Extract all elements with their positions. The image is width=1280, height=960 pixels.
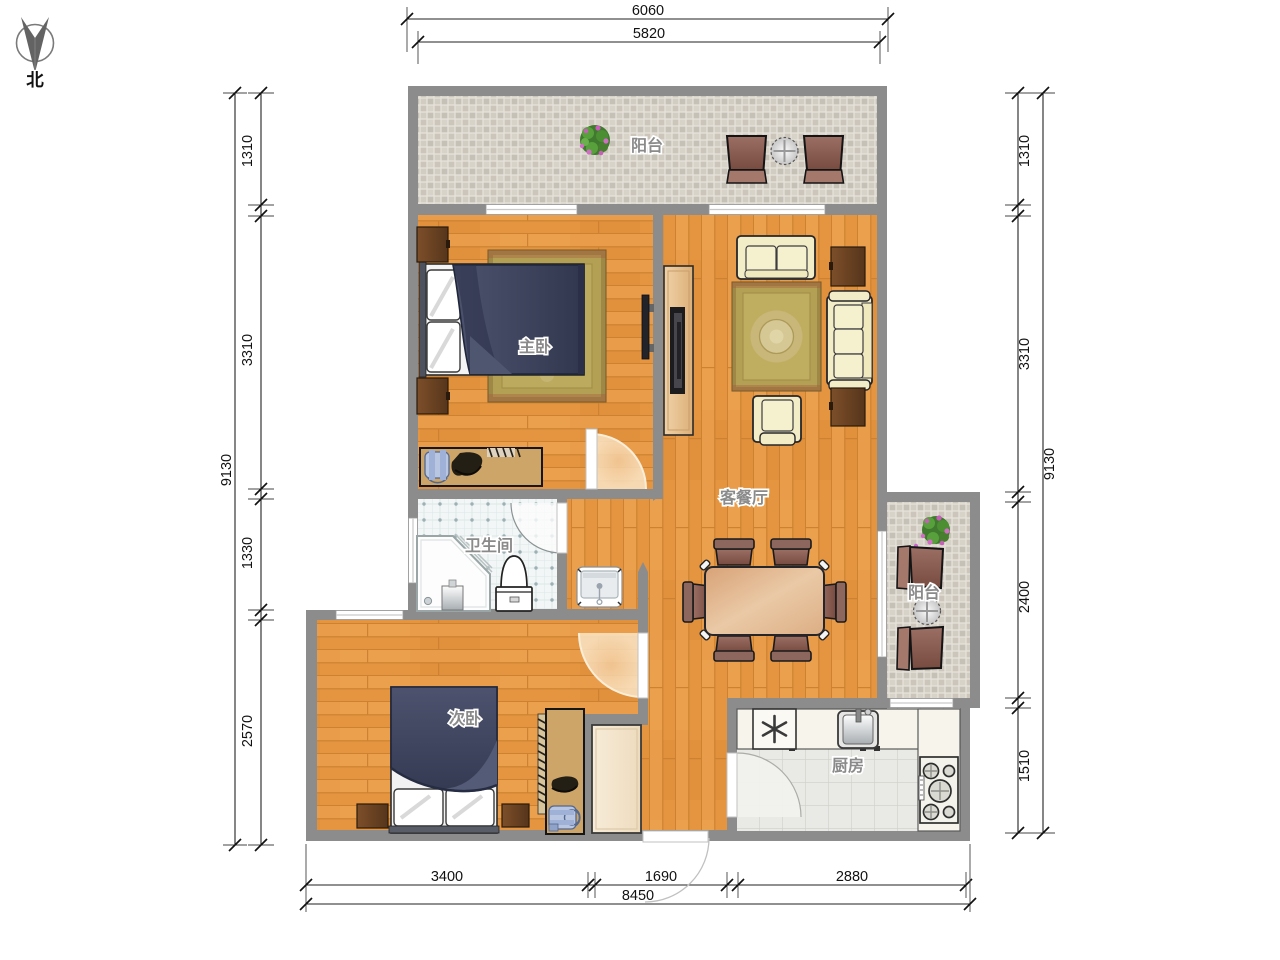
svg-text:厨房: 厨房 (832, 756, 864, 775)
svg-text:3310: 3310 (1017, 338, 1033, 370)
svg-text:阳台: 阳台 (908, 583, 940, 602)
svg-text:6060: 6060 (632, 3, 664, 19)
svg-text:1330: 1330 (240, 537, 256, 569)
svg-text:北: 北 (26, 70, 44, 90)
svg-text:5820: 5820 (633, 26, 665, 42)
svg-text:1690: 1690 (645, 869, 677, 885)
svg-text:客餐厅: 客餐厅 (720, 488, 768, 507)
svg-text:主卧: 主卧 (519, 337, 551, 356)
svg-text:2880: 2880 (836, 869, 868, 885)
svg-text:2570: 2570 (240, 715, 256, 747)
svg-text:9130: 9130 (219, 454, 235, 486)
svg-text:1310: 1310 (240, 135, 256, 167)
svg-text:卫生间: 卫生间 (465, 536, 513, 555)
svg-text:1510: 1510 (1017, 750, 1033, 782)
svg-text:9130: 9130 (1042, 448, 1058, 480)
svg-text:2400: 2400 (1017, 581, 1033, 613)
svg-text:次卧: 次卧 (449, 709, 481, 728)
svg-text:3400: 3400 (431, 869, 463, 885)
svg-text:阳台: 阳台 (631, 136, 663, 155)
svg-text:1310: 1310 (1017, 135, 1033, 167)
svg-text:3310: 3310 (240, 334, 256, 366)
